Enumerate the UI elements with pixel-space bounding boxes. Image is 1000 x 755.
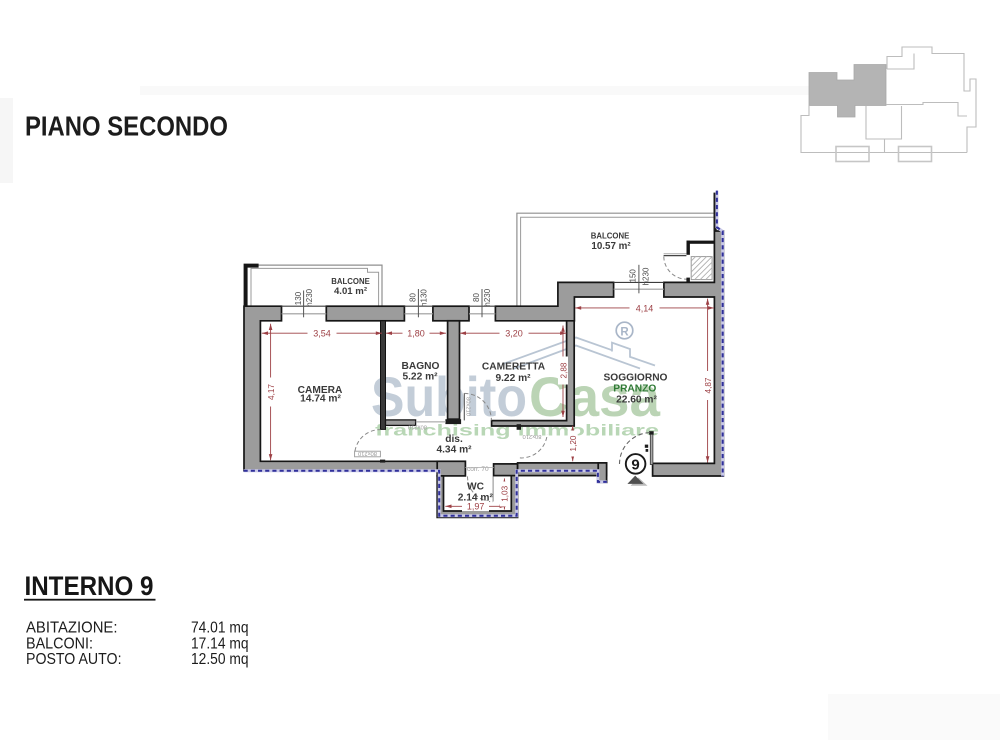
svg-text:1,03: 1,03 [501, 485, 510, 501]
svg-text:CAMERETTA: CAMERETTA [482, 361, 546, 372]
svg-text:2,88: 2,88 [559, 362, 568, 378]
svg-text:WC: WC [467, 482, 485, 493]
svg-text:h230: h230 [483, 288, 492, 306]
svg-text:BALCONI:: BALCONI: [26, 635, 93, 652]
svg-text:1,80: 1,80 [407, 329, 425, 339]
svg-text:80x210: 80x210 [465, 397, 471, 416]
svg-text:3,54: 3,54 [313, 329, 331, 339]
svg-text:BAGNO: BAGNO [402, 361, 440, 372]
svg-text:ABITAZIONE:: ABITAZIONE: [26, 620, 118, 637]
svg-text:PIANO SECONDO: PIANO SECONDO [25, 111, 228, 142]
svg-text:h230: h230 [305, 288, 314, 306]
svg-text:12.50 mq: 12.50 mq [191, 651, 249, 668]
svg-text:80x210: 80x210 [358, 450, 377, 456]
svg-text:150: 150 [629, 269, 638, 283]
svg-text:4.01 m²: 4.01 m² [334, 286, 367, 297]
svg-text:4.34 m²: 4.34 m² [436, 445, 472, 456]
svg-text:2.14 m²: 2.14 m² [458, 493, 494, 504]
svg-text:10.57 m²: 10.57 m² [591, 241, 631, 252]
svg-text:3,20: 3,20 [505, 329, 523, 339]
svg-text:4,17: 4,17 [267, 384, 276, 400]
svg-text:5.22 m²: 5.22 m² [402, 371, 438, 382]
svg-text:POSTO AUTO:: POSTO AUTO: [26, 651, 122, 668]
svg-text:1,20: 1,20 [569, 435, 578, 451]
svg-text:17.14 mq: 17.14 mq [191, 635, 249, 652]
svg-text:INTERNO 9: INTERNO 9 [25, 571, 154, 601]
svg-text:22.60 m²: 22.60 m² [616, 395, 657, 406]
svg-text:80x210: 80x210 [522, 433, 541, 439]
svg-text:BALCONE: BALCONE [331, 277, 370, 286]
svg-text:130: 130 [294, 291, 303, 305]
svg-text:SOGGIORNO: SOGGIORNO [604, 373, 668, 384]
svg-text:74.01 mq: 74.01 mq [191, 620, 249, 637]
svg-text:4,87: 4,87 [704, 377, 713, 393]
svg-text:h130: h130 [420, 289, 429, 307]
svg-text:BALCONE: BALCONE [591, 231, 630, 240]
svg-text:dis.: dis. [445, 434, 463, 445]
svg-text:9.22 m²: 9.22 m² [495, 373, 531, 384]
svg-text:R: R [620, 326, 629, 338]
svg-text:4,14: 4,14 [636, 303, 654, 313]
svg-text:80x210: 80x210 [408, 424, 427, 430]
svg-text:h230: h230 [641, 267, 650, 285]
svg-text:80: 80 [408, 293, 417, 302]
svg-text:9: 9 [631, 456, 639, 473]
svg-text:14.74 m²: 14.74 m² [300, 394, 341, 405]
svg-text:80: 80 [472, 293, 481, 302]
svg-text:PRANZO: PRANZO [613, 384, 656, 395]
